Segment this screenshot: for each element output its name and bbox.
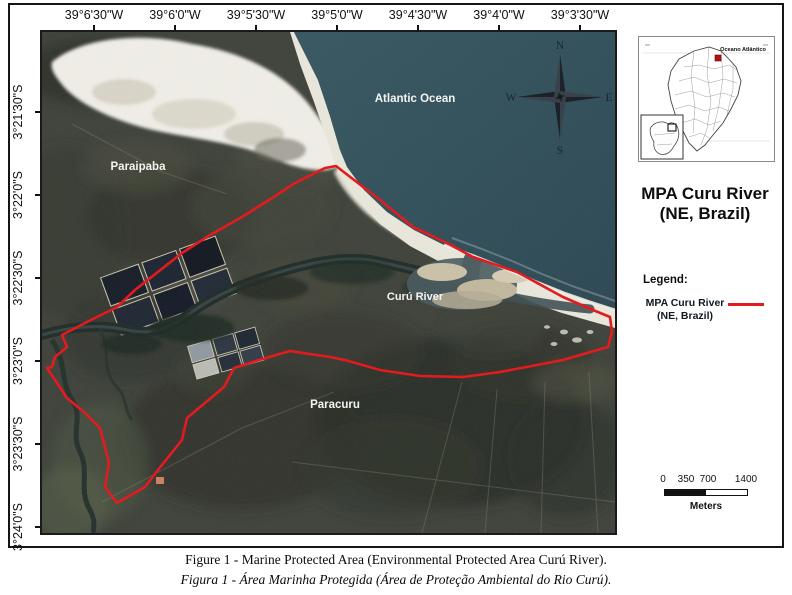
compass-w-label: W (506, 92, 517, 104)
legend-line-swatch (728, 303, 764, 306)
panel-title: MPA Curu River (NE, Brazil) (622, 184, 788, 224)
lat-tick-label: 3°22'0"S (11, 147, 25, 243)
lat-tick-label: 3°22'30"S (11, 230, 25, 326)
inset-map: Oceano Atlântico (638, 36, 775, 162)
lat-tick-label: 3°23'0"S (11, 313, 25, 409)
figure-page: 39°6'30"W39°6'0"W39°5'30"W39°5'0"W39°4'3… (0, 0, 792, 595)
lat-tick-label: 3°21'30"S (11, 64, 25, 160)
scale-bar (664, 489, 748, 496)
legend-heading: Legend: (643, 274, 688, 286)
lon-tick-label: 39°3'30"W (532, 8, 628, 22)
scale-bar-fill (665, 490, 706, 495)
image-grain (42, 32, 615, 533)
compass-n-label: N (556, 40, 565, 52)
label-paraipaba: Paraipaba (111, 161, 167, 173)
map-frame: Atlantic Ocean Paraipaba Curú River Para… (40, 30, 617, 535)
scale-unit-label: Meters (664, 501, 748, 512)
compass-s-label: S (557, 145, 563, 157)
brazil-inset (641, 115, 683, 159)
scale-tick-label: 1400 (735, 474, 757, 485)
scale-tick-label: 0 (660, 474, 666, 485)
panel-title-line2: (NE, Brazil) (622, 204, 788, 224)
satellite-map: Atlantic Ocean Paraipaba Curú River Para… (42, 32, 615, 533)
inset-ocean-label: Oceano Atlântico (720, 47, 766, 53)
location-marker (715, 55, 721, 61)
compass-e-label: E (605, 92, 612, 104)
label-atlantic-ocean: Atlantic Ocean (375, 93, 456, 105)
legend-item-line2: (NE, Brazil) (645, 310, 725, 323)
caption-pt: Figura 1 - Área Marinha Protegida (Área … (0, 572, 792, 588)
panel-title-line1: MPA Curu River (622, 184, 788, 204)
label-paracuru: Paracuru (310, 399, 360, 411)
legend-item-label: MPA Curu River (NE, Brazil) (645, 297, 725, 322)
scale-tick-label: 350 (678, 474, 695, 485)
scale-tick-label: 700 (700, 474, 717, 485)
scale-tick-labels: 03507001400 (0, 474, 792, 486)
caption-en: Figure 1 - Marine Protected Area (Enviro… (0, 552, 792, 568)
label-curu-river: Curú River (387, 291, 444, 303)
legend-item-line1: MPA Curu River (645, 297, 725, 310)
